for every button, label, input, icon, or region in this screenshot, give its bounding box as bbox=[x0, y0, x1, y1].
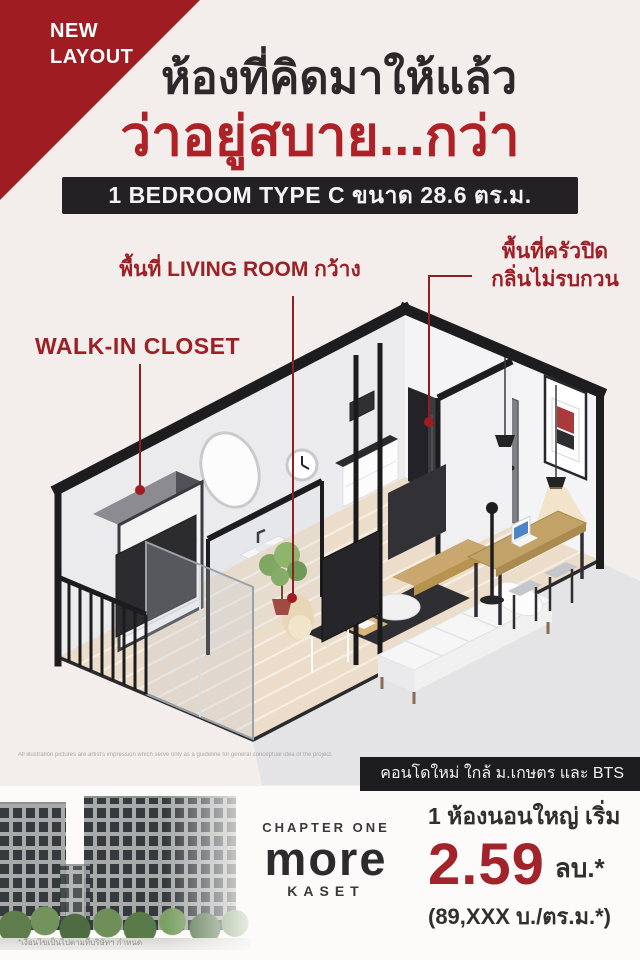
badge-line1: NEW bbox=[50, 18, 200, 44]
leader-line-living bbox=[292, 296, 294, 596]
price-block: 1 ห้องนอนใหญ่ เริ่ม 2.59 ลบ.* (89,XXX บ.… bbox=[428, 799, 638, 934]
floorplan-illustration bbox=[0, 225, 640, 785]
leader-line-kitchen-v bbox=[428, 275, 430, 421]
terms-footnote: *เงื่อนไขเป็นไปตามที่บริษัทฯ กำหนด bbox=[18, 936, 142, 949]
price-per-sqm: (89,XXX บ./ตร.ม.*) bbox=[428, 899, 638, 934]
leader-line-walkin bbox=[139, 364, 141, 489]
label-closed-kitchen-line2: กลิ่นไม่รบกวน bbox=[472, 266, 638, 294]
price-row: 2.59 ลบ.* bbox=[428, 837, 638, 893]
brand-kaset: KASET bbox=[236, 883, 416, 899]
label-closed-kitchen-line1: พื้นที่ครัวปิด bbox=[472, 238, 638, 266]
condo-ad-poster: NEW LAYOUT ห้องที่คิดมาให้แล้ว ว่าอยู่สบ… bbox=[0, 0, 640, 960]
leader-dot-kitchen bbox=[424, 417, 434, 427]
unit-type-banner: 1 BEDROOM TYPE C ขนาด 28.6 ตร.ม. bbox=[62, 177, 578, 214]
label-closed-kitchen: พื้นที่ครัวปิด กลิ่นไม่รบกวน bbox=[472, 238, 638, 294]
leader-dot-walkin bbox=[135, 485, 145, 495]
brand-logo: CHAPTER ONE more KASET bbox=[236, 820, 416, 899]
location-banner: คอนโดใหม่ ใกล้ ม.เกษตร และ BTS bbox=[360, 757, 640, 791]
label-walkin-closet: WALK-IN CLOSET bbox=[30, 333, 245, 360]
price-intro: 1 ห้องนอนใหญ่ เริ่ม bbox=[428, 799, 638, 835]
leader-dot-living bbox=[287, 593, 297, 603]
label-living-room: พื้นที่ LIVING ROOM กว้าง bbox=[90, 253, 390, 286]
picture-frame bbox=[545, 376, 586, 479]
brand-more: more bbox=[236, 835, 416, 883]
price-unit: ลบ.* bbox=[555, 848, 605, 889]
headline-primary: ห้องที่คิดมาให้แล้ว bbox=[0, 50, 640, 106]
illustration-disclaimer: All illustration pictures are artist's i… bbox=[18, 752, 378, 758]
headline-secondary: ว่าอยู่สบาย...กว่า bbox=[0, 104, 640, 168]
leader-line-kitchen-h bbox=[428, 275, 472, 277]
price-value: 2.59 bbox=[428, 837, 545, 893]
